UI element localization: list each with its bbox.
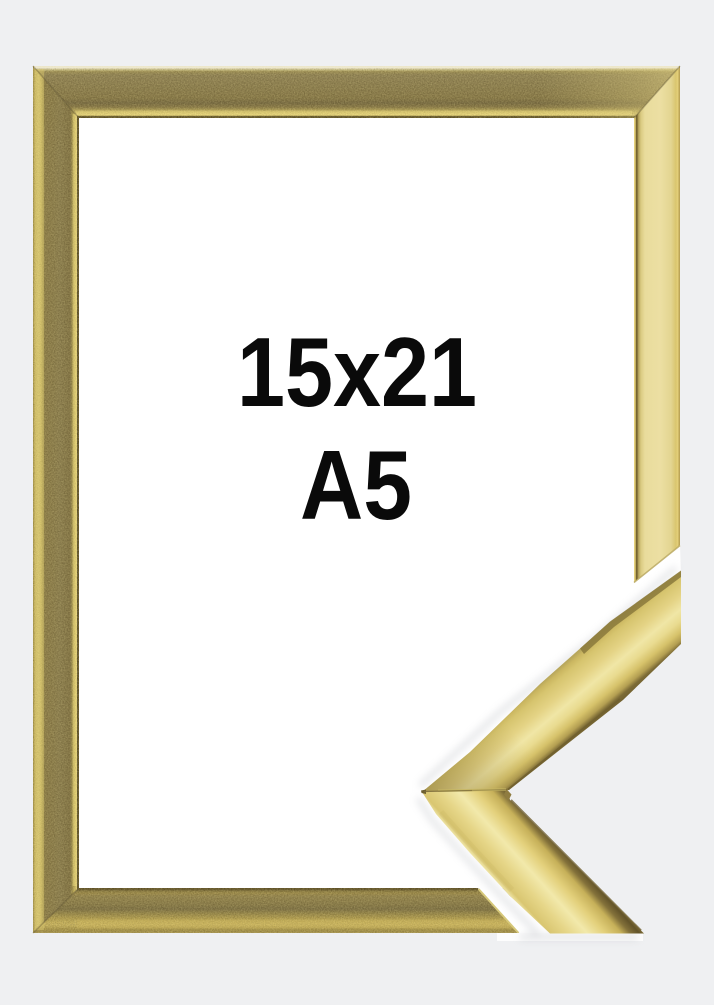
svg-text:15x21: 15x21: [237, 317, 477, 427]
svg-text:A5: A5: [300, 430, 412, 540]
